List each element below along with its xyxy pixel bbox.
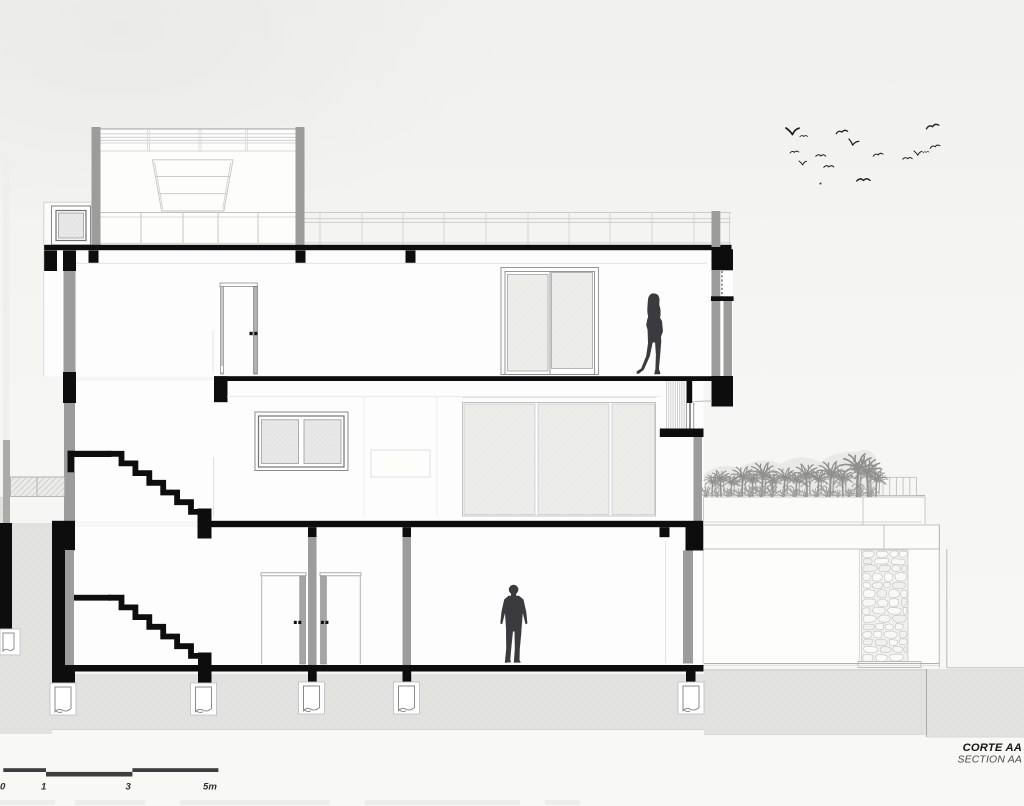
svg-text:0: 0: [0, 782, 6, 793]
svg-text:CORTE AA: CORTE AA: [963, 742, 1022, 754]
svg-text:3: 3: [126, 782, 132, 793]
svg-text:1: 1: [41, 782, 46, 793]
svg-text:SECTION AA: SECTION AA: [957, 755, 1022, 766]
svg-text:5m: 5m: [203, 782, 217, 793]
